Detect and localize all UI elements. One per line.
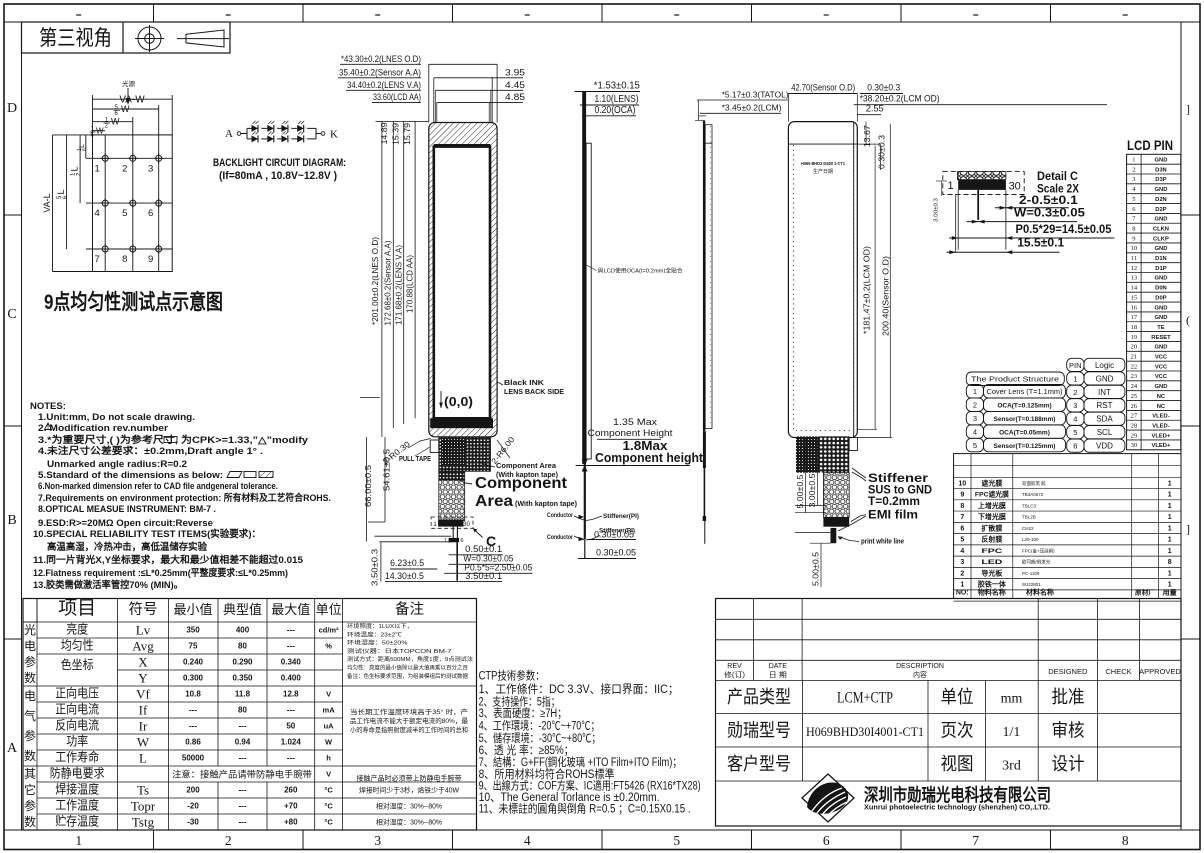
svg-text:3rd: 3rd <box>1002 759 1021 774</box>
svg-text:11: 11 <box>1131 255 1137 262</box>
svg-text:---: --- <box>239 802 247 811</box>
svg-text:TB3A0672: TB3A0672 <box>1022 492 1044 497</box>
svg-text:*1.53±0.15: *1.53±0.15 <box>594 81 640 92</box>
svg-text:3.50±0.3: 3.50±0.3 <box>370 549 380 586</box>
svg-text:上增光膜: 上增光膜 <box>978 501 1006 510</box>
svg-text:Sensor(T=0.125mm): Sensor(T=0.125mm) <box>994 443 1056 450</box>
svg-text:0.30±0.3: 0.30±0.3 <box>867 83 900 94</box>
svg-text:7: 7 <box>972 833 979 848</box>
svg-text:80: 80 <box>238 642 247 651</box>
svg-text:GND: GND <box>1096 374 1114 383</box>
svg-text:17: 17 <box>1131 314 1138 321</box>
svg-text:0.94: 0.94 <box>235 738 251 747</box>
svg-text:贮存温度: 贮存温度 <box>55 814 99 829</box>
svg-text:A: A <box>225 128 233 140</box>
svg-text:下增光膜: 下增光膜 <box>978 512 1006 521</box>
svg-text:CTP技術参数：: CTP技術参数： <box>479 669 545 683</box>
svg-text:1: 1 <box>1132 157 1135 164</box>
svg-text:2: 2 <box>1073 388 1077 397</box>
svg-text:21: 21 <box>1131 354 1138 361</box>
svg-text:第三视角: 第三视角 <box>39 27 112 50</box>
svg-text:10.8: 10.8 <box>185 690 201 699</box>
svg-text:3: 3 <box>374 833 381 848</box>
svg-text:5.00±0.5: 5.00±0.5 <box>796 474 805 509</box>
svg-text:---: --- <box>287 642 295 651</box>
svg-text:13.胶类需做激活率管控70% (MIN)。: 13.胶类需做激活率管控70% (MIN)。 <box>33 579 183 591</box>
svg-text:Lv: Lv <box>136 623 151 638</box>
svg-text:4: 4 <box>973 428 977 437</box>
svg-text:L: L <box>139 751 147 766</box>
svg-text:4.85: 4.85 <box>505 92 525 103</box>
svg-text:LCD PIN: LCD PIN <box>1127 138 1173 153</box>
svg-text:内容: 内容 <box>913 670 927 679</box>
svg-text:PULL TAPE: PULL TAPE <box>399 454 431 463</box>
svg-text:27: 27 <box>1131 413 1138 420</box>
svg-text:25: 25 <box>1131 393 1138 400</box>
svg-text:171.68±0.2(LENS V.A): 171.68±0.2(LENS V.A) <box>395 245 404 325</box>
svg-text:9: 9 <box>148 254 153 265</box>
svg-text:Conductor: Conductor <box>547 512 573 519</box>
svg-text:遮光膜: 遮光膜 <box>981 478 1002 487</box>
svg-text:170.88(LCD AA): 170.88(LCD AA) <box>406 255 415 313</box>
svg-text:°C: °C <box>324 818 333 827</box>
svg-text:Component Height: Component Height <box>588 428 674 438</box>
svg-text:VCC: VCC <box>1155 355 1168 361</box>
svg-text:FPC: FPC <box>981 548 1002 555</box>
svg-text:X: X <box>138 655 148 670</box>
svg-text:用量: 用量 <box>1162 588 1178 597</box>
svg-text:5: 5 <box>973 441 977 450</box>
svg-text:15.39: 15.39 <box>392 122 401 145</box>
svg-text:Component: Component <box>475 475 568 492</box>
svg-text:Cover Lens (T=1.1mm): Cover Lens (T=1.1mm) <box>987 389 1063 396</box>
svg-text:30: 30 <box>1009 181 1021 193</box>
svg-text:5: 5 <box>1132 196 1135 203</box>
svg-text:FPC(金+压延铜): FPC(金+压延铜) <box>1022 547 1055 554</box>
svg-text:备注: 备注 <box>395 601 424 618</box>
svg-text:GND: GND <box>1155 276 1168 282</box>
svg-text:设计: 设计 <box>1052 754 1085 774</box>
svg-text:页次: 页次 <box>941 721 974 741</box>
svg-text:LED: LED <box>981 559 1002 566</box>
svg-text:23: 23 <box>1131 373 1138 380</box>
svg-text:---: --- <box>239 722 247 731</box>
svg-text:34.40±0.2(LENS V.A): 34.40±0.2(LENS V.A) <box>347 80 421 91</box>
svg-text:D3P: D3P <box>1155 177 1166 183</box>
svg-text:°C: °C <box>324 786 333 795</box>
svg-text:Xunrui photoelectric technolog: Xunrui photoelectric technology (shenzhe… <box>864 803 1050 812</box>
svg-text:1.Unit:mm, Do not scale drawin: 1.Unit:mm, Do not scale drawing. <box>38 412 195 423</box>
svg-text:SCL: SCL <box>1097 428 1113 437</box>
svg-text:7: 7 <box>960 514 964 521</box>
svg-text:VLED-: VLED- <box>1152 414 1169 420</box>
svg-text:PC-1100: PC-1100 <box>1022 571 1040 576</box>
svg-text:35.40±0.2(Sensor A.A): 35.40±0.2(Sensor A.A) <box>339 67 421 78</box>
svg-text:30: 30 <box>1131 442 1138 449</box>
svg-text:L: L <box>56 189 66 194</box>
svg-text:4: 4 <box>960 548 964 555</box>
svg-text:6: 6 <box>461 538 464 544</box>
svg-text:相对湿度：30%--80%: 相对湿度：30%--80% <box>376 802 442 811</box>
svg-text:*201.00±0.2(LNES O.D): *201.00±0.2(LNES O.D) <box>371 237 380 325</box>
svg-text:1、工作條件：DC 3.3V、接口界面：IIC；: 1、工作條件：DC 3.3V、接口界面：IIC； <box>479 682 679 696</box>
svg-text:功率: 功率 <box>66 734 88 749</box>
svg-text:---: --- <box>239 818 247 827</box>
svg-text:6.Non-marked dimension refer t: 6.Non-marked dimension refer to CAD file… <box>38 481 278 491</box>
svg-text:BACKLIGHT CIRCUIT DIAGRAM:: BACKLIGHT CIRCUIT DIAGRAM: <box>213 157 346 169</box>
svg-text:0.30±0.05: 0.30±0.05 <box>594 530 634 541</box>
svg-text:生产日期: 生产日期 <box>813 168 833 175</box>
svg-text:GND: GND <box>1155 345 1168 351</box>
svg-text:V: V <box>326 690 331 699</box>
svg-text:12.8: 12.8 <box>283 690 299 699</box>
svg-text:---: --- <box>239 754 247 763</box>
svg-text:7: 7 <box>95 254 100 265</box>
svg-text:10: 10 <box>1131 245 1138 252</box>
svg-text:0.340: 0.340 <box>281 658 302 667</box>
svg-text:0.300: 0.300 <box>183 674 204 683</box>
svg-text:DESIGNED: DESIGNED <box>1048 667 1088 676</box>
svg-text:3.95: 3.95 <box>505 67 525 78</box>
svg-text:GND: GND <box>1155 384 1168 390</box>
svg-text:VLED+: VLED+ <box>1152 443 1171 449</box>
svg-text:66.00±0.5: 66.00±0.5 <box>363 465 373 507</box>
svg-text:EMI film: EMI film <box>868 510 918 522</box>
svg-text:视图: 视图 <box>941 754 974 774</box>
svg-text:8、所用材料均符合ROHS標準: 8、所用材料均符合ROHS標準 <box>479 767 615 781</box>
svg-text:1: 1 <box>1168 570 1172 577</box>
svg-text:3、表面硬度：≥7H；: 3、表面硬度：≥7H； <box>479 706 567 720</box>
svg-text:SUS to GND: SUS to GND <box>868 485 932 497</box>
svg-text:L: L <box>70 166 80 171</box>
svg-text:uA: uA <box>324 722 335 731</box>
svg-text:OCA(T=0.05mm): OCA(T=0.05mm) <box>999 430 1050 437</box>
svg-text:1: 1 <box>1168 582 1172 589</box>
svg-text:焊接时间少于3秒，烙铁少于40W: 焊接时间少于3秒，烙铁少于40W <box>359 786 459 795</box>
svg-text:3.00±0.5: 3.00±0.5 <box>808 473 817 508</box>
svg-text:-30: -30 <box>187 818 199 827</box>
svg-text:RESET: RESET <box>1151 335 1171 341</box>
svg-text:均匀性: 均匀性 <box>61 639 94 653</box>
svg-text:VLED+: VLED+ <box>1152 433 1171 439</box>
svg-text:(If=80mA , 10.8V~12.8V ): (If=80mA , 10.8V~12.8V ) <box>219 170 337 182</box>
svg-text:GND: GND <box>1155 246 1168 252</box>
svg-text:D0N: D0N <box>1155 286 1167 292</box>
svg-text:符号: 符号 <box>129 601 158 618</box>
svg-text:欧司朗/侧发光: 欧司朗/侧发光 <box>1022 559 1051 566</box>
svg-text:7、結構：G+FF(鋼化玻璃 +ITO Film+ITO F: 7、結構：G+FF(鋼化玻璃 +ITO Film+ITO Film)； <box>479 755 682 769</box>
svg-text:6: 6 <box>148 208 153 219</box>
svg-text:D2P: D2P <box>1155 207 1166 213</box>
svg-text:350: 350 <box>186 626 200 635</box>
svg-text:6: 6 <box>960 525 964 532</box>
svg-text:K: K <box>330 129 338 141</box>
svg-text:15: 15 <box>1131 294 1138 301</box>
svg-text:1: 1 <box>973 387 977 396</box>
svg-text:数: 数 <box>24 814 36 829</box>
svg-text:22: 22 <box>1131 363 1138 370</box>
svg-text:8.OPTICAL MEASUE INSTRUMENT: B: 8.OPTICAL MEASUE INSTRUMENT: BM-7 . <box>38 504 216 515</box>
svg-text:400: 400 <box>236 626 250 635</box>
svg-text:TE: TE <box>1157 325 1165 331</box>
svg-text:LENS BACK SIDE: LENS BACK SIDE <box>504 387 564 396</box>
svg-text:9.ESD:R>=20MΩ Open circuit:Rev: 9.ESD:R>=20MΩ Open circuit:Reverse <box>38 518 213 529</box>
svg-text:Component height: Component height <box>595 451 704 465</box>
svg-text:L20-100: L20-100 <box>1022 537 1039 542</box>
svg-text:PIN: PIN <box>1069 361 1082 370</box>
svg-text:%: % <box>325 642 332 651</box>
svg-text:物料名称: 物料名称 <box>978 588 1006 597</box>
svg-text:(With kapton tape): (With kapton tape) <box>515 501 577 508</box>
svg-text:Logic: Logic <box>1095 361 1114 370</box>
svg-text:Avg: Avg <box>132 639 154 654</box>
svg-text:参: 参 <box>24 654 36 669</box>
svg-text:环境温度：23±2℃: 环境温度：23±2℃ <box>347 630 403 638</box>
svg-text:172.68±0.2(Sensor A.A): 172.68±0.2(Sensor A.A) <box>384 240 393 325</box>
svg-text:GND: GND <box>1155 187 1168 193</box>
svg-text:Stiffener: Stiffener <box>868 473 929 485</box>
svg-text:W: W <box>111 117 120 127</box>
svg-text:11、未標註的圓角與倒角 R=0.5 ；C=0.15X0.1: 11、未標註的圓角與倒角 R=0.5 ；C=0.15X0.15 . <box>479 802 691 816</box>
svg-text:2: 2 <box>1132 166 1135 173</box>
svg-text:色坐标: 色坐标 <box>61 657 94 672</box>
svg-text:均匀性：亮度的最小值除以最大值再乘以百分之百: 均匀性：亮度的最小值除以最大值再乘以百分之百 <box>347 664 468 672</box>
svg-text:单位: 单位 <box>316 602 342 617</box>
svg-text:1.024: 1.024 <box>281 738 302 747</box>
svg-text:日 期: 日 期 <box>769 671 787 679</box>
svg-text:If: If <box>139 703 148 718</box>
svg-text:2. Modification rev.number: 2. Modification rev.number <box>38 423 168 434</box>
svg-text:光: 光 <box>24 623 36 637</box>
svg-text:审核: 审核 <box>1052 721 1085 741</box>
svg-text:小的寿命是指照射度减半的工作时间的总和: 小的寿命是指照射度减半的工作时间的总和 <box>350 725 468 734</box>
svg-text:接触产品时必须带上防静电手腕带: 接触产品时必须带上防静电手腕带 <box>357 774 462 783</box>
svg-text:当长期工作温度环境高于35° 时，产: 当长期工作温度环境高于35° 时，产 <box>350 707 469 716</box>
svg-text:VLED-: VLED- <box>1152 423 1169 429</box>
svg-text:D3N: D3N <box>1155 167 1167 173</box>
svg-text:8: 8 <box>1168 559 1172 566</box>
svg-text:3: 3 <box>973 414 977 423</box>
svg-text:其: 其 <box>24 767 36 781</box>
svg-text:反向电流: 反向电流 <box>55 718 99 733</box>
svg-text:VCC: VCC <box>1155 364 1168 370</box>
svg-text:8: 8 <box>122 254 127 265</box>
svg-text:14.30±0.5: 14.30±0.5 <box>385 571 424 582</box>
svg-text:勋瑞型号: 勋瑞型号 <box>727 721 791 741</box>
svg-text:8: 8 <box>1132 225 1135 232</box>
svg-text:54.61±0.5: 54.61±0.5 <box>382 449 392 491</box>
svg-text:1: 1 <box>960 582 964 589</box>
svg-text:电: 电 <box>24 689 36 703</box>
svg-text:20: 20 <box>1131 344 1138 351</box>
svg-text:200: 200 <box>186 786 200 795</box>
svg-text:1/1: 1/1 <box>1003 725 1021 740</box>
svg-text:VDD: VDD <box>1096 442 1113 451</box>
svg-text:CH22: CH22 <box>1022 526 1034 531</box>
svg-text:15.79: 15.79 <box>403 122 412 145</box>
svg-text:最小值: 最小值 <box>174 602 213 617</box>
svg-text:1: 1 <box>1168 503 1172 510</box>
svg-text:双面胶黑 胶: 双面胶黑 胶 <box>1022 480 1046 487</box>
svg-text:0.350: 0.350 <box>232 674 253 683</box>
svg-text:A: A <box>7 741 18 756</box>
svg-text:75: 75 <box>189 642 198 651</box>
svg-text:0.30±0.3: 0.30±0.3 <box>877 134 886 169</box>
svg-text:W: W <box>96 127 104 136</box>
svg-text:NC: NC <box>1157 404 1166 410</box>
svg-text:!: ! <box>47 425 49 431</box>
svg-text:DESCRIPTION: DESCRIPTION <box>896 663 944 670</box>
svg-text:正向电流: 正向电流 <box>55 702 99 717</box>
svg-text:焊接温度: 焊接温度 <box>55 782 99 797</box>
svg-text:3.00±0.3: 3.00±0.3 <box>934 198 940 222</box>
svg-text:6.23±0.5: 6.23±0.5 <box>390 558 424 569</box>
svg-text:CHECK: CHECK <box>1105 667 1131 676</box>
svg-text:6: 6 <box>1073 442 1077 451</box>
svg-text:3: 3 <box>960 559 964 566</box>
svg-text:测试方式：距离500MM，角度1度，9点测试法: 测试方式：距离500MM，角度1度，9点测试法 <box>347 655 474 663</box>
svg-text:Ir: Ir <box>139 719 148 734</box>
svg-text:4.45: 4.45 <box>505 80 525 91</box>
svg-text:4: 4 <box>524 833 531 848</box>
svg-text:(: ( <box>1186 313 1190 327</box>
svg-text:REV: REV <box>727 663 742 670</box>
svg-text:INT: INT <box>1098 388 1111 397</box>
svg-text:1: 1 <box>1168 492 1172 499</box>
svg-text:GND: GND <box>1155 315 1168 321</box>
svg-text:8: 8 <box>1122 833 1129 848</box>
svg-text:高温高湿，冷热冲击，高低温储存实验: 高温高湿，冷热冲击，高低温储存实验 <box>47 541 207 553</box>
svg-text:5.00±0.5: 5.00±0.5 <box>812 551 821 586</box>
svg-text:---: --- <box>189 722 197 731</box>
svg-text:H069BHD30I4001-CT1: H069BHD30I4001-CT1 <box>806 725 924 739</box>
svg-text:测试仪器：日本TOPCON BM-7: 测试仪器：日本TOPCON BM-7 <box>347 647 452 655</box>
svg-text:1.35 Max: 1.35 Max <box>613 417 658 427</box>
svg-text:4.未注尺寸公差要求：±0.2mm,Draft angle: 4.未注尺寸公差要求：±0.2mm,Draft angle 1° . <box>38 445 263 457</box>
svg-text:8: 8 <box>960 503 964 510</box>
svg-text:W: W <box>137 735 150 750</box>
svg-text:(0,0): (0,0) <box>444 395 473 409</box>
svg-text:P0.5*29=14.5±0.05: P0.5*29=14.5±0.05 <box>1016 222 1112 236</box>
svg-text:mA: mA <box>323 706 336 715</box>
svg-text:Area: Area <box>475 493 513 510</box>
svg-text:9点均匀性测试点示意图: 9点均匀性测试点示意图 <box>44 290 223 314</box>
svg-text:1: 1 <box>947 180 953 192</box>
svg-text:CLKN: CLKN <box>1153 226 1169 232</box>
svg-text:T=0.2mm: T=0.2mm <box>868 496 920 508</box>
svg-text:客户型号: 客户型号 <box>727 754 791 774</box>
svg-text:200.40(Sensor O.D): 200.40(Sensor O.D) <box>880 256 890 336</box>
svg-text:产品类型: 产品类型 <box>727 687 791 707</box>
svg-text:5.Standard of the dimensions a: 5.Standard of the dimensions as below: <box>38 470 223 481</box>
svg-text:0.290: 0.290 <box>232 658 253 667</box>
svg-text:D1P: D1P <box>1155 266 1166 272</box>
svg-text:10: 10 <box>958 480 966 487</box>
svg-text:Conductor: Conductor <box>547 534 573 541</box>
svg-text:L: L <box>79 144 86 148</box>
svg-text:29: 29 <box>1131 432 1138 439</box>
svg-text:工作寿命: 工作寿命 <box>55 750 99 765</box>
svg-text:胶铁一体: 胶铁一体 <box>978 580 1006 589</box>
svg-text:最大值: 最大值 <box>271 602 310 617</box>
svg-text:26: 26 <box>1131 403 1138 410</box>
svg-text:RST: RST <box>1097 401 1113 410</box>
svg-text:2: 2 <box>122 163 127 174</box>
svg-text:OCA(T=0.125mm): OCA(T=0.125mm) <box>997 403 1051 410</box>
svg-text:*181.47±0.2(LCM OD): *181.47±0.2(LCM OD) <box>861 246 871 334</box>
svg-text:3: 3 <box>148 163 153 174</box>
svg-text:h: h <box>326 754 331 763</box>
svg-text:16: 16 <box>1131 304 1138 311</box>
svg-text:Black INK: Black INK <box>504 378 545 387</box>
svg-text:CLKP: CLKP <box>1153 236 1169 242</box>
svg-text:品工作电流不能大于额定电流的80%，最: 品工作电流不能大于额定电流的80%，最 <box>350 716 468 725</box>
svg-text:V: V <box>326 770 331 779</box>
svg-text:cd/m²: cd/m² <box>319 626 340 635</box>
svg-text:°C: °C <box>324 802 333 811</box>
svg-text:2、支持操作：5指；: 2、支持操作：5指； <box>479 695 560 709</box>
svg-text:0.86: 0.86 <box>185 738 201 747</box>
svg-text:7.Requirements on environment: 7.Requirements on environment protection… <box>38 492 331 504</box>
svg-text:80: 80 <box>238 706 247 715</box>
svg-text:3: 3 <box>1132 176 1135 183</box>
svg-text:4: 4 <box>1073 415 1077 424</box>
svg-text:50000: 50000 <box>182 754 205 763</box>
svg-text:原材厂: 原材厂 <box>1135 588 1156 597</box>
svg-text:H069 BHD3 0I400 1-CT1: H069 BHD3 0I400 1-CT1 <box>801 161 845 166</box>
svg-text:单位: 单位 <box>941 687 974 707</box>
svg-text:6: 6 <box>82 148 88 151</box>
svg-text:1: 1 <box>1168 525 1172 532</box>
svg-text:260: 260 <box>284 786 298 795</box>
svg-text:11.同一片背光X,Y坐标要求，最大和最少值相差不能超过0.: 11.同一片背光X,Y坐标要求，最大和最少值相差不能超过0.015 <box>33 554 304 566</box>
svg-text:C: C <box>7 307 16 322</box>
svg-text:18: 18 <box>1131 324 1138 331</box>
svg-text:print white line: print white line <box>861 539 904 546</box>
svg-text:33.60(LCD AA): 33.60(LCD AA) <box>373 92 421 103</box>
svg-text:24: 24 <box>1131 383 1138 390</box>
svg-text:导光板: 导光板 <box>981 568 1002 577</box>
svg-text:2: 2 <box>960 570 964 577</box>
svg-text:电: 电 <box>24 639 36 653</box>
svg-text:NOTES:: NOTES: <box>30 401 66 412</box>
svg-text:W: W <box>121 104 130 114</box>
svg-text:GND: GND <box>1155 217 1168 223</box>
svg-text:10.SPECIAL RELIABILITY TEST IT: 10.SPECIAL RELIABILITY TEST ITEMS(实验要求)： <box>33 528 261 540</box>
svg-text:6、透 光 率：≥85%；: 6、透 光 率：≥85%； <box>479 743 574 757</box>
svg-text:50: 50 <box>286 722 295 731</box>
svg-text:NC: NC <box>1157 394 1166 400</box>
svg-text:气: 气 <box>24 708 36 723</box>
svg-text:LCM+CTP: LCM+CTP <box>837 690 893 707</box>
svg-text:数: 数 <box>24 748 36 763</box>
svg-text:亮度: 亮度 <box>66 622 88 637</box>
svg-text:2: 2 <box>225 833 232 848</box>
svg-text:4、工作環境：-20℃~+70℃；: 4、工作環境：-20℃~+70℃； <box>479 718 600 732</box>
svg-text:+80: +80 <box>284 818 298 827</box>
svg-text:0.240: 0.240 <box>183 658 204 667</box>
svg-text:正向电压: 正向电压 <box>55 686 99 701</box>
svg-text:---: --- <box>189 706 197 715</box>
svg-text:---: --- <box>287 626 295 635</box>
svg-text:SU22801: SU22801 <box>1022 582 1041 587</box>
svg-text:0.20(OCA): 0.20(OCA) <box>595 105 636 116</box>
svg-text:它: 它 <box>24 782 36 797</box>
svg-text:1: 1 <box>1168 514 1172 521</box>
svg-text:Y: Y <box>138 671 148 686</box>
svg-text:防静电要求: 防静电要求 <box>50 766 105 781</box>
svg-text:]: ] <box>1186 102 1190 116</box>
